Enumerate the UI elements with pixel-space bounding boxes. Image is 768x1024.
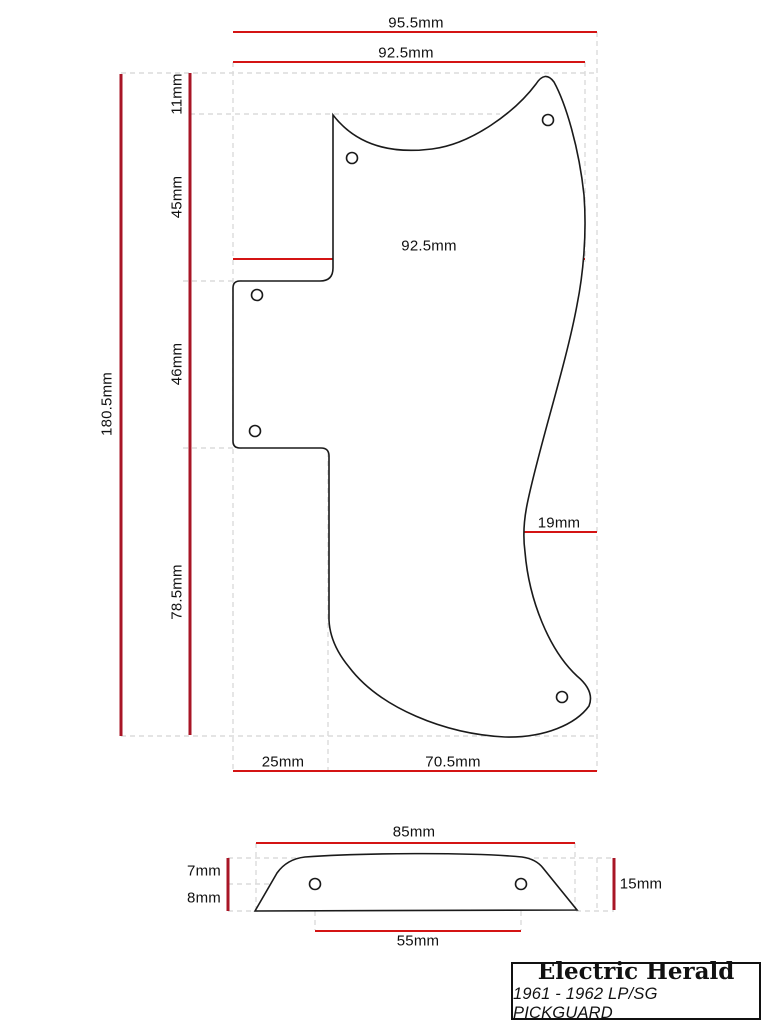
dim-label-92-5mm-mid: 92.5mm bbox=[401, 238, 456, 255]
brand-logo-text: Electric Herald bbox=[538, 960, 735, 984]
screw-hole-horn bbox=[543, 115, 554, 126]
dim-label-92-5mm-top: 92.5mm bbox=[378, 45, 433, 62]
screw-hole-bottom bbox=[557, 692, 568, 703]
dim-label-55mm: 55mm bbox=[397, 933, 439, 950]
drawing-title: 1961 - 1962 LP/SG PICKGUARD bbox=[513, 985, 759, 1021]
dim-label-8mm: 8mm bbox=[187, 890, 221, 907]
profile-hole-right bbox=[516, 879, 527, 890]
dim-label-11mm: 11mm bbox=[169, 73, 186, 114]
technical-drawing bbox=[0, 0, 768, 1024]
screw-hole-neck bbox=[347, 153, 358, 164]
pickguard-outline bbox=[233, 76, 591, 737]
dim-label-25mm: 25mm bbox=[262, 754, 304, 771]
dim-label-15mm: 15mm bbox=[620, 876, 662, 893]
profile-hole-left bbox=[310, 879, 321, 890]
dim-label-46mm: 46mm bbox=[169, 343, 186, 385]
dim-label-7mm: 7mm bbox=[187, 863, 221, 880]
dim-label-19mm: 19mm bbox=[538, 515, 580, 532]
screw-hole-mid-lower bbox=[250, 426, 261, 437]
dim-label-95-5mm: 95.5mm bbox=[388, 15, 443, 32]
pickguard-profile-outline bbox=[255, 854, 577, 911]
dim-label-85mm: 85mm bbox=[393, 824, 435, 841]
dim-label-45mm: 45mm bbox=[169, 176, 186, 218]
dim-label-78-5mm: 78.5mm bbox=[169, 564, 186, 619]
dim-label-70-5mm: 70.5mm bbox=[425, 754, 480, 771]
dim-label-180-5mm: 180.5mm bbox=[99, 372, 116, 436]
title-block: Electric Herald 1961 - 1962 LP/SG PICKGU… bbox=[511, 962, 761, 1020]
drawing-sheet: 95.5mm 92.5mm 92.5mm 19mm 25mm 70.5mm 11… bbox=[0, 0, 768, 1024]
screw-hole-mid-upper bbox=[252, 290, 263, 301]
